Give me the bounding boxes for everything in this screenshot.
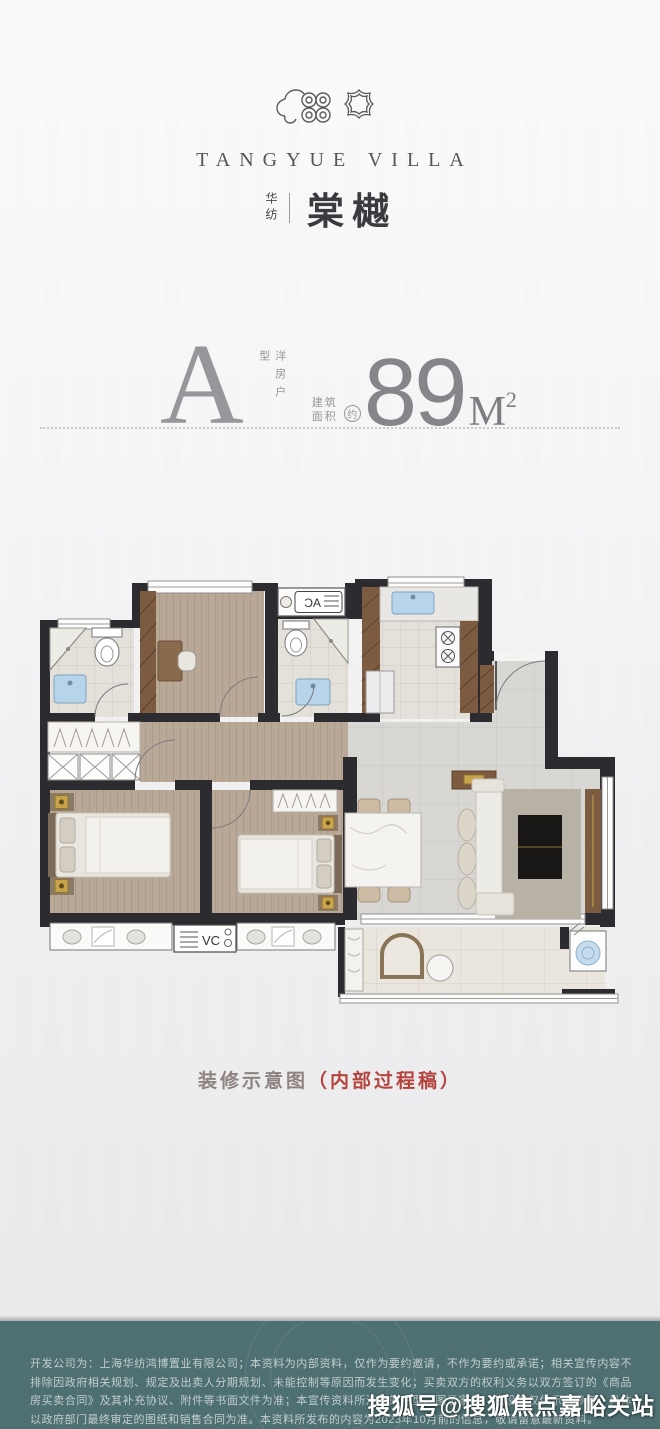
unit-title: A 洋房户型 建筑 面积 约 89 M2: [160, 328, 517, 428]
floor-plan: AC VC: [40, 575, 620, 1005]
vc-label: VC: [202, 933, 220, 948]
area-unit-sup: 2: [506, 387, 517, 412]
poster-page: TANGYUE VILLA 华纺 棠樾 A 洋房户型 建筑 面积 约 89 M2: [0, 0, 660, 1429]
brand-name-cn: 华纺 棠樾: [0, 181, 660, 235]
ac-platform: AC: [278, 588, 345, 616]
sohu-watermark: 搜狐号@搜狐焦点嘉峪关站: [368, 1387, 655, 1421]
corridor-floor: [140, 722, 348, 782]
unit-area-group: 建筑 面积 约 89 M2: [312, 358, 517, 428]
area-label-line2: 面积: [312, 410, 338, 424]
unit-type-desc: 洋房户型: [256, 328, 288, 410]
dotted-separator: [40, 427, 620, 429]
plan-caption: 装修示意图（内部过程稿）: [0, 1066, 660, 1093]
living-side-window: [602, 777, 613, 909]
brand-name-divider: [289, 193, 290, 223]
area-label-line1: 建筑: [312, 396, 338, 410]
master-bay-window: [50, 923, 172, 950]
caption-note: （内部过程稿）: [308, 1071, 462, 1092]
area-value: 89: [364, 358, 465, 428]
balcony-rail-window: [340, 994, 618, 1003]
caption-main: 装修示意图: [198, 1071, 308, 1092]
brand-emblem-icon: [271, 82, 389, 141]
balcony-chair: [382, 935, 422, 977]
brand-name-en: TANGYUE VILLA: [0, 149, 660, 172]
approx-badge: 约: [344, 405, 361, 422]
area-label: 建筑 面积: [312, 396, 338, 424]
unit-type-letter: A: [160, 342, 244, 428]
area-unit: M2: [469, 396, 517, 428]
balcony-table: [427, 955, 453, 981]
entry-door-opening: [494, 651, 545, 661]
bedroom-2-bay-window: [237, 923, 335, 950]
brand-logo: TANGYUE VILLA 华纺 棠樾: [0, 82, 660, 235]
brand-name-cn-small: 华纺: [263, 190, 280, 226]
brand-name-cn-large: 棠樾: [299, 181, 397, 235]
ac-label: AC: [304, 596, 321, 610]
study-window: [148, 581, 252, 593]
vc-unit: VC: [174, 925, 236, 952]
